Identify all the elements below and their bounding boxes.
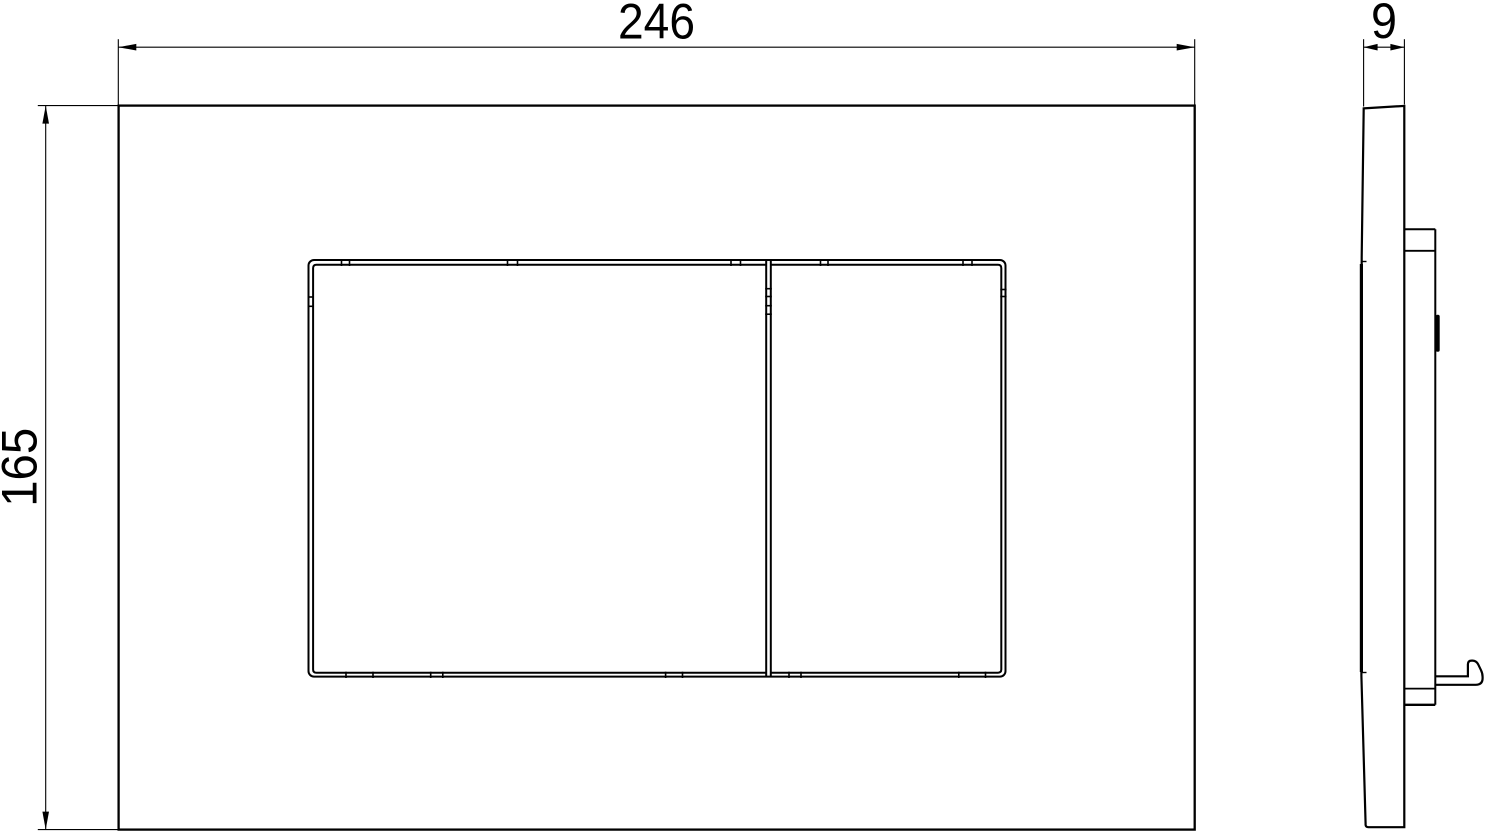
svg-text:165: 165 <box>0 428 47 507</box>
svg-text:246: 246 <box>618 0 695 50</box>
svg-text:9: 9 <box>1371 0 1397 49</box>
